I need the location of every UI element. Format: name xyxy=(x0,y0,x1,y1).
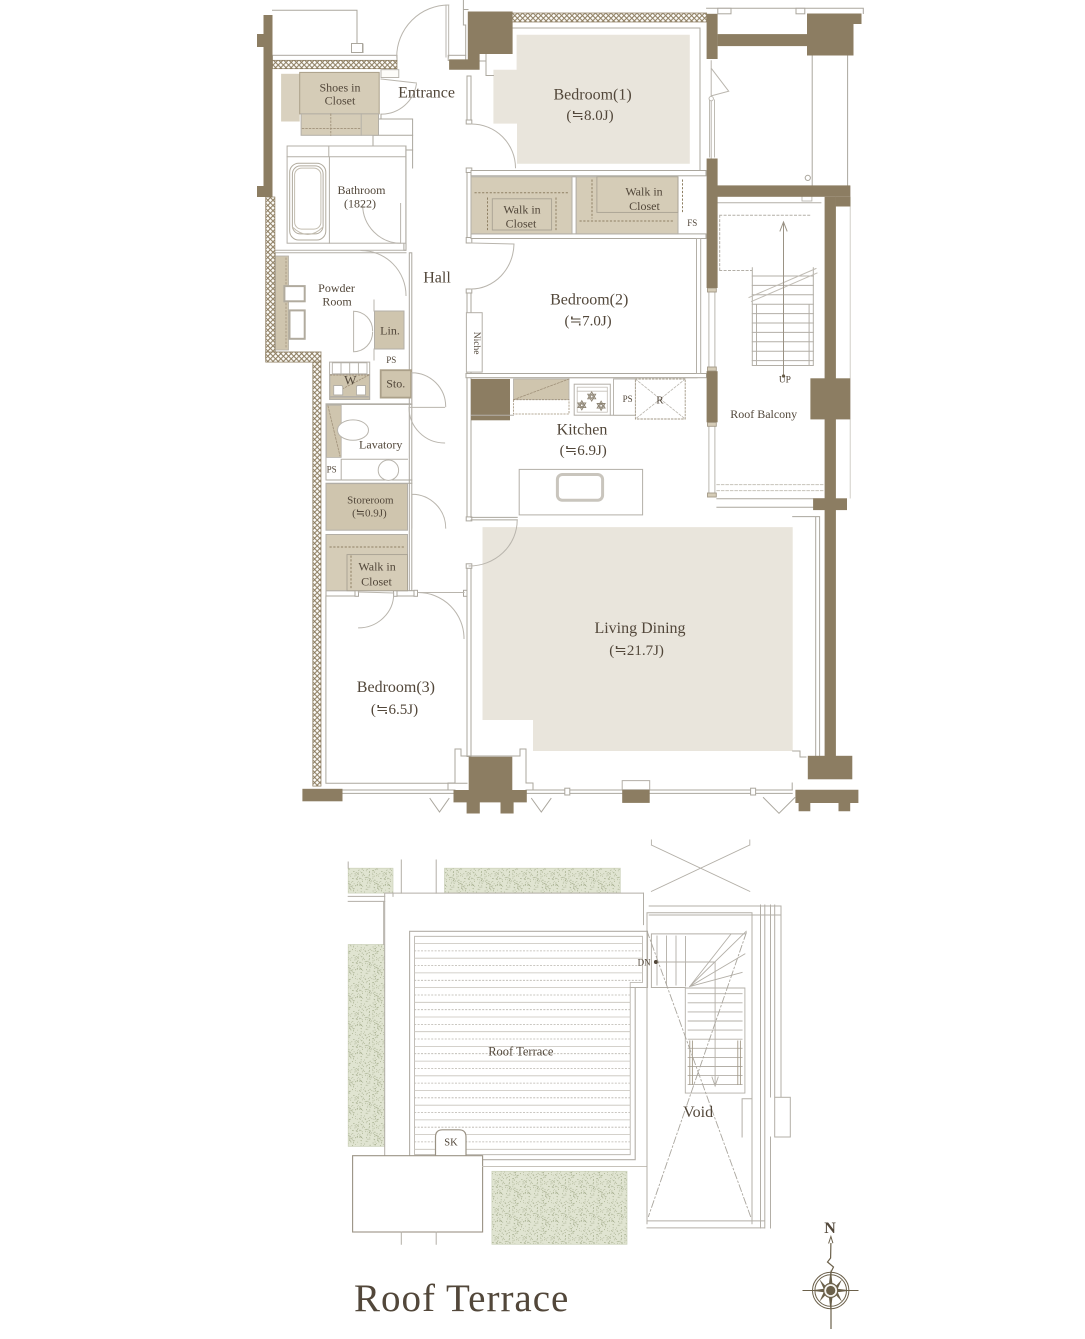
svg-text:FS: FS xyxy=(687,218,697,228)
svg-text:R: R xyxy=(656,395,664,407)
svg-text:PS: PS xyxy=(327,465,337,475)
svg-text:PowderRoom: PowderRoom xyxy=(318,281,355,308)
svg-text:Walk inCloset: Walk inCloset xyxy=(625,185,662,214)
svg-text:DN: DN xyxy=(638,958,651,968)
svg-text:Void: Void xyxy=(683,1104,713,1121)
svg-text:Walk inCloset: Walk inCloset xyxy=(358,560,395,589)
svg-text:Entrance: Entrance xyxy=(398,84,455,101)
svg-text:SK: SK xyxy=(444,1138,458,1149)
svg-text:Lavatory: Lavatory xyxy=(359,437,402,451)
svg-text:Niche: Niche xyxy=(471,332,481,355)
svg-text:Shoes inCloset: Shoes inCloset xyxy=(319,81,360,108)
svg-text:UP: UP xyxy=(779,376,791,386)
svg-text:Sto.: Sto. xyxy=(386,377,405,391)
svg-text:Roof Terrace: Roof Terrace xyxy=(354,1277,569,1320)
svg-text:Roof Terrace: Roof Terrace xyxy=(488,1045,554,1059)
svg-text:Walk inCloset: Walk inCloset xyxy=(503,202,540,230)
svg-text:W: W xyxy=(344,372,357,387)
svg-text:Kitchen(≒6.9J): Kitchen(≒6.9J) xyxy=(557,422,608,460)
svg-text:Hall: Hall xyxy=(423,269,451,286)
svg-text:N: N xyxy=(824,1220,836,1237)
svg-text:Bedroom(3)(≒6.5J): Bedroom(3)(≒6.5J) xyxy=(357,679,435,718)
svg-text:PS: PS xyxy=(623,394,633,404)
svg-text:PS: PS xyxy=(386,355,396,365)
svg-text:Lin.: Lin. xyxy=(380,324,400,338)
svg-text:Bedroom(2)(≒7.0J): Bedroom(2)(≒7.0J) xyxy=(550,291,628,329)
svg-text:Roof Balcony: Roof Balcony xyxy=(730,407,797,421)
